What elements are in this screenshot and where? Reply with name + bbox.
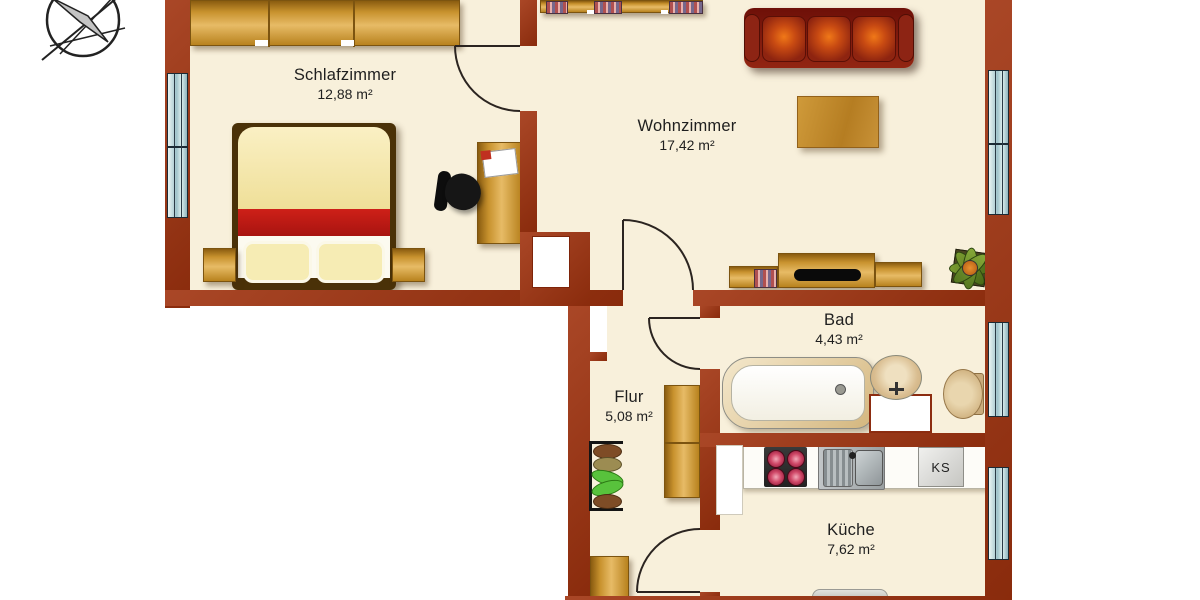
bed-pillow-left [243, 241, 312, 283]
window-kueche [988, 467, 1009, 560]
wardrobe-gap [255, 40, 268, 46]
room-label-schlafzimmer: Schlafzimmer 12,88 m² [245, 66, 445, 102]
plant-center [962, 260, 978, 276]
room-area: 5,08 m² [569, 408, 689, 424]
drain-icon [835, 384, 846, 395]
bathtub [722, 357, 874, 429]
bathtub-basin [731, 365, 865, 421]
wall-flur-bad [700, 306, 720, 318]
wall-flur-west [568, 306, 590, 598]
room-area: 17,42 m² [587, 137, 787, 153]
room-area: 12,88 m² [245, 86, 445, 102]
room-name: Wohnzimmer [587, 117, 787, 136]
wardrobe-gap [341, 40, 354, 46]
sofa-cushion [852, 16, 896, 62]
floorplan-canvas: KS [0, 0, 1200, 600]
sofa-cushion [762, 16, 806, 62]
wardrobe-divider [268, 1, 270, 47]
room-name: Küche [771, 521, 931, 540]
stove [764, 447, 807, 487]
burner-icon [787, 468, 805, 486]
faucet-icon [889, 388, 904, 391]
room-label-wohnzimmer: Wohnzimmer 17,42 m² [587, 117, 787, 153]
books [546, 1, 568, 14]
tv-bench [778, 253, 875, 288]
books [594, 1, 622, 14]
wall-schlaf-wohn-divider [520, 111, 537, 232]
sideboard-gap [661, 10, 668, 14]
window-wohnzimmer [988, 70, 1009, 215]
burner-icon [767, 468, 785, 486]
coat-rack [589, 441, 623, 511]
double-bed [232, 123, 396, 290]
wall-niche [590, 306, 607, 352]
books [669, 1, 703, 14]
room-area: 4,43 m² [769, 331, 909, 347]
rack-item [593, 494, 622, 509]
window-bad [988, 322, 1009, 417]
wardrobe-divider [665, 442, 701, 444]
room-area: 7,62 m² [771, 541, 931, 557]
floor-doorway-wohnzimmer [623, 288, 693, 308]
desk-paper [482, 148, 519, 178]
window-divider [989, 143, 1008, 145]
hallway-shelf [590, 556, 629, 600]
burner-icon [787, 450, 805, 468]
room-name: Flur [569, 388, 689, 407]
wardrobe [190, 0, 460, 46]
kitchen-sink-unit [818, 444, 885, 490]
nightstand-right [392, 248, 425, 282]
bed-stripe [238, 209, 390, 236]
kitchen-cabinet-block [716, 445, 743, 515]
window-schlafzimmer [167, 73, 188, 218]
faucet-icon [849, 452, 856, 459]
window-divider [168, 146, 187, 148]
room-name: Schlafzimmer [245, 66, 445, 85]
tv-bench-right [875, 262, 922, 287]
nightstand-left [203, 248, 236, 282]
wall-exterior-bottom [565, 596, 1012, 600]
wall-schlaf-wohn-divider [520, 0, 537, 46]
sink-basin [855, 450, 883, 486]
coffee-table [797, 96, 879, 148]
tv [794, 269, 861, 281]
room-label-flur: Flur 5,08 m² [569, 388, 689, 424]
sofa-armrest-left [744, 14, 760, 62]
wall-niche-edge [590, 352, 607, 361]
floor-doorway-kueche [700, 530, 720, 592]
room-label-bad: Bad 4,43 m² [769, 311, 909, 347]
paper-clip [480, 150, 491, 160]
room-name: Bad [769, 311, 909, 330]
bed-pillow-right [316, 241, 385, 283]
sink-cabinet [869, 394, 932, 433]
bed-duvet [238, 127, 390, 209]
sofa-armrest-right [898, 14, 914, 62]
desk-chair [436, 169, 484, 213]
toilet-bowl [943, 369, 983, 419]
books [754, 269, 777, 288]
tv-bench-left [729, 266, 778, 288]
room-label-kueche: Küche 7,62 m² [771, 521, 931, 557]
sofa-cushion [807, 16, 851, 62]
compass-icon [30, 0, 140, 80]
sofa [744, 8, 914, 68]
wall-wohnzimmer-south [693, 290, 1010, 306]
bathroom-sink [870, 355, 922, 400]
wall-bad-kueche [700, 433, 1010, 447]
floor-doorway-bad [700, 318, 720, 369]
wall-shaft [532, 236, 570, 288]
sideboard-gap [587, 10, 594, 14]
sideboard [540, 0, 703, 13]
burner-icon [767, 450, 785, 468]
fridge-label: KS [918, 447, 964, 487]
